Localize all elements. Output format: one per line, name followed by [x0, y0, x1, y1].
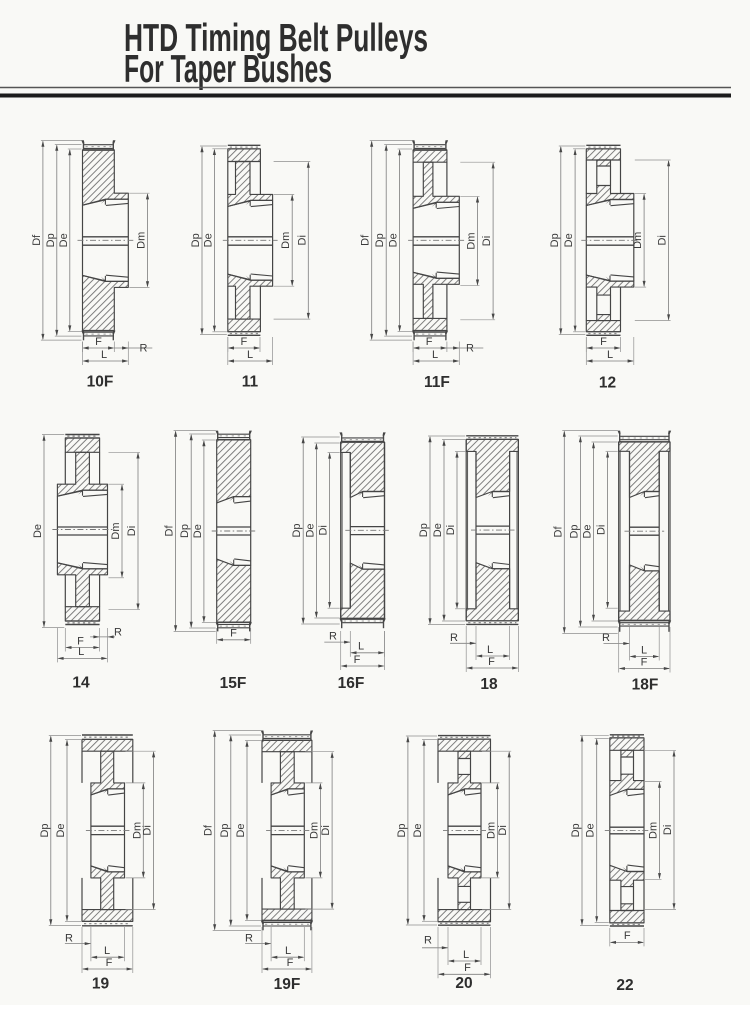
svg-text:De: De — [32, 524, 44, 538]
svg-text:De: De — [235, 823, 247, 837]
svg-text:R: R — [140, 343, 148, 355]
svg-text:16F: 16F — [338, 675, 365, 692]
svg-text:Di: Di — [657, 235, 669, 245]
svg-text:Di: Di — [318, 525, 330, 535]
svg-text:Dp: Dp — [219, 823, 231, 837]
svg-text:Dm: Dm — [110, 522, 122, 539]
svg-text:R: R — [245, 933, 253, 945]
svg-text:For Taper Bushes: For Taper Bushes — [124, 48, 332, 91]
svg-text:L: L — [607, 349, 613, 361]
svg-text:11F: 11F — [424, 374, 450, 391]
svg-text:R: R — [450, 632, 458, 644]
svg-text:Dm: Dm — [308, 822, 320, 839]
svg-text:22: 22 — [616, 977, 633, 994]
svg-text:10F: 10F — [87, 374, 114, 391]
svg-text:Dm: Dm — [648, 822, 660, 839]
svg-text:19F: 19F — [274, 976, 301, 993]
svg-text:F: F — [488, 656, 495, 668]
svg-text:De: De — [563, 233, 575, 247]
svg-text:F: F — [600, 336, 607, 348]
svg-text:Dp: Dp — [190, 233, 202, 247]
svg-text:Dp: Dp — [374, 233, 386, 247]
svg-text:14: 14 — [72, 675, 90, 692]
svg-text:Dm: Dm — [136, 232, 148, 249]
svg-text:Dm: Dm — [632, 232, 644, 249]
svg-text:Dp: Dp — [568, 524, 580, 538]
svg-text:18F: 18F — [632, 677, 659, 694]
svg-text:L: L — [285, 945, 291, 957]
svg-text:Di: Di — [662, 825, 674, 835]
svg-text:Dp: Dp — [39, 823, 51, 837]
svg-text:Di: Di — [142, 825, 154, 835]
svg-text:L: L — [101, 349, 107, 361]
svg-text:R: R — [424, 935, 432, 947]
svg-text:L: L — [487, 644, 493, 656]
svg-text:F: F — [641, 656, 648, 668]
svg-text:De: De — [388, 233, 400, 247]
svg-text:Df: Df — [552, 526, 564, 538]
svg-text:15F: 15F — [220, 675, 247, 692]
svg-text:Dp: Dp — [570, 823, 582, 837]
svg-text:Di: Di — [126, 526, 138, 536]
svg-text:R: R — [114, 627, 122, 639]
svg-text:F: F — [287, 957, 294, 969]
svg-text:Di: Di — [497, 825, 509, 835]
svg-text:F: F — [230, 628, 237, 640]
svg-text:L: L — [463, 949, 469, 961]
svg-text:Di: Di — [445, 525, 457, 535]
svg-text:F: F — [241, 336, 248, 348]
svg-text:De: De — [585, 823, 597, 837]
svg-text:F: F — [624, 930, 631, 942]
svg-text:L: L — [78, 646, 84, 658]
svg-text:De: De — [304, 523, 316, 537]
svg-text:Dp: Dp — [549, 233, 561, 247]
svg-text:Di: Di — [296, 235, 308, 245]
svg-text:De: De — [582, 524, 594, 538]
svg-text:11: 11 — [242, 374, 259, 391]
svg-text:20: 20 — [455, 975, 472, 992]
svg-text:Dm: Dm — [280, 232, 292, 249]
svg-text:Df: Df — [203, 824, 215, 836]
svg-text:De: De — [432, 523, 444, 537]
svg-text:R: R — [65, 933, 73, 945]
svg-text:19: 19 — [92, 976, 110, 993]
svg-text:R: R — [602, 632, 610, 644]
svg-text:L: L — [104, 945, 110, 957]
svg-text:F: F — [95, 336, 102, 348]
svg-text:L: L — [641, 644, 647, 656]
svg-text:Dp: Dp — [45, 233, 57, 247]
svg-text:R: R — [466, 343, 474, 355]
svg-text:12: 12 — [599, 375, 616, 392]
svg-text:Df: Df — [360, 234, 372, 246]
svg-text:Dp: Dp — [418, 523, 430, 537]
svg-text:F: F — [464, 962, 471, 974]
svg-text:L: L — [432, 349, 438, 361]
svg-text:Dp: Dp — [291, 523, 303, 537]
svg-text:R: R — [329, 631, 337, 643]
svg-text:L: L — [358, 641, 364, 653]
svg-text:L: L — [247, 349, 253, 361]
svg-text:Df: Df — [164, 525, 176, 537]
svg-text:Di: Di — [320, 825, 332, 835]
svg-text:Di: Di — [481, 236, 493, 246]
svg-text:De: De — [202, 233, 214, 247]
svg-text:Dm: Dm — [466, 232, 478, 249]
svg-text:F: F — [106, 957, 113, 969]
svg-text:Dp: Dp — [396, 823, 408, 837]
svg-text:Di: Di — [596, 525, 608, 535]
svg-text:F: F — [354, 654, 361, 666]
svg-text:De: De — [58, 233, 70, 247]
svg-text:De: De — [55, 823, 67, 837]
svg-text:De: De — [192, 524, 204, 538]
svg-text:F: F — [426, 336, 433, 348]
svg-text:Df: Df — [31, 234, 43, 246]
svg-text:Dp: Dp — [179, 524, 191, 538]
svg-text:18: 18 — [480, 676, 498, 693]
svg-text:Dm: Dm — [485, 822, 497, 839]
svg-text:De: De — [412, 823, 424, 837]
